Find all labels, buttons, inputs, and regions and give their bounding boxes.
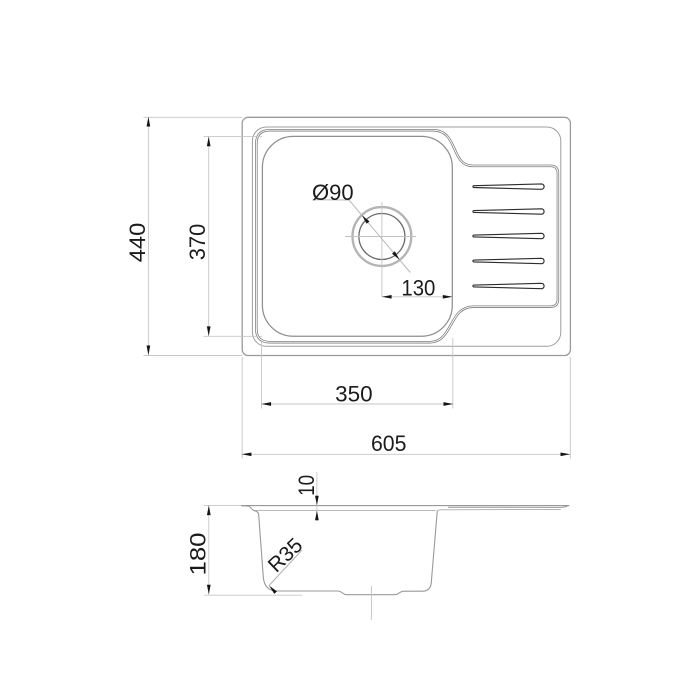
svg-text:180: 180 — [186, 533, 211, 576]
svg-text:10: 10 — [294, 475, 319, 496]
svg-text:440: 440 — [125, 223, 150, 263]
svg-text:130: 130 — [401, 275, 435, 300]
svg-text:605: 605 — [371, 431, 407, 456]
svg-text:350: 350 — [335, 381, 373, 406]
svg-text:Ø90: Ø90 — [312, 180, 354, 205]
svg-text:370: 370 — [185, 224, 210, 261]
